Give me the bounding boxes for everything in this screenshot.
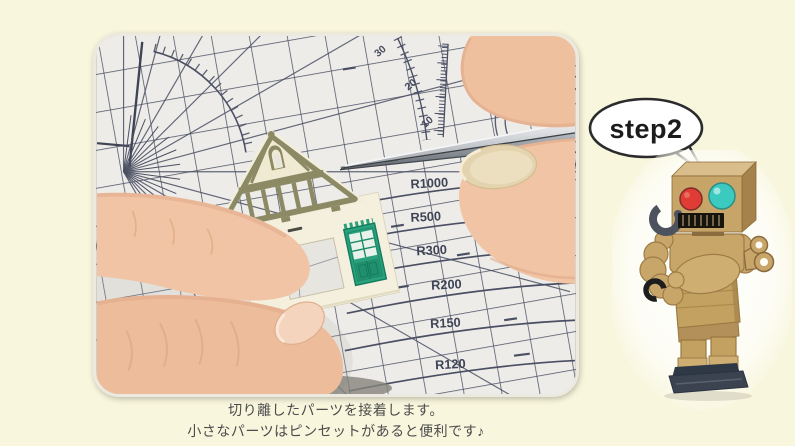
radius-label: R300 (416, 242, 447, 259)
robot-neck (692, 232, 724, 236)
caption-line-2: 小さなパーツはピンセットがあると便利です♪ (80, 421, 592, 442)
caption-line-1: 切り離したパーツを接着します。 (80, 400, 592, 421)
step-graphic: R1000 R500 R300 R200 R150 R120 30 20 10 (0, 0, 795, 446)
radius-label: R500 (410, 208, 441, 225)
robot-red-eye (680, 188, 702, 210)
craft-photo: R1000 R500 R300 R200 R150 R120 30 20 10 (93, 33, 579, 397)
craft-photo-image: R1000 R500 R300 R200 R150 R120 30 20 10 (96, 36, 576, 394)
radius-label: R120 (435, 356, 466, 373)
radius-label: R200 (431, 276, 462, 293)
robot-cyan-eye (709, 183, 735, 209)
step-label: step2 (609, 114, 682, 144)
radius-label: R1000 (410, 174, 448, 191)
step-caption: 切り離したパーツを接着します。 小さなパーツはピンセットがあると便利です♪ (80, 400, 592, 442)
radius-label: R150 (430, 315, 461, 332)
robot-mascot (612, 150, 792, 412)
